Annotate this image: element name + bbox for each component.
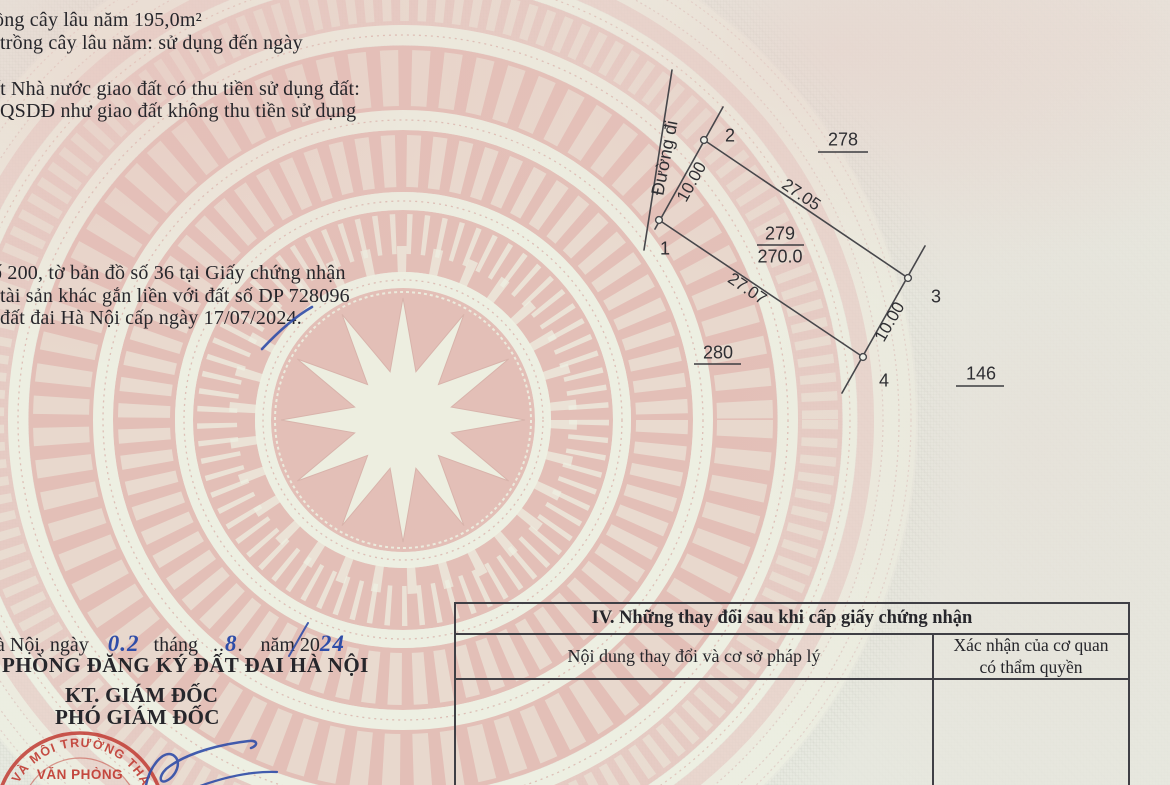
empty-cell-confirmation [932, 680, 1128, 785]
changes-table-title: IV. Những thay đổi sau khi cấp giấy chứn… [456, 604, 1128, 635]
signature-tail [200, 772, 277, 785]
text-state-allocation: ất Nhà nước giao đất có thu tiền sử dụng… [0, 78, 360, 101]
drum-star [281, 298, 525, 542]
empty-cell-content [456, 680, 932, 785]
changes-table-empty-row [456, 680, 1128, 785]
text-qsdd: QSDĐ như giao đất không thu tiền sử dụng [0, 100, 356, 123]
scanned-land-certificate: { "colors": { "seal_red": "#c13b32", "in… [0, 0, 1170, 785]
text-map-sheet: ố 200, tờ bản đồ số 36 tại Giấy chứng nh… [0, 262, 346, 285]
col-header-confirmation-line1: Xác nhận của cơ quan [953, 635, 1108, 657]
text-perennial-term: trồng cây lâu năm: sử dụng đến ngày [0, 32, 303, 55]
vertex-4-label: 4 [879, 371, 889, 392]
kt-giam-doc: KT. GIÁM ĐỐC [65, 684, 218, 707]
col-header-confirmation-line2: có thẩm quyền [979, 657, 1082, 679]
changes-table-header: Nội dung thay đổi và cơ sở pháp lý Xác n… [456, 635, 1128, 680]
vertex-3-marker [905, 275, 912, 282]
vertex-4-marker [860, 354, 867, 361]
office-name: PHÒNG ĐĂNG KÝ ĐẤT ĐAI HÀ NỘI [2, 654, 369, 677]
parcel-area-270: 270.0 [757, 247, 802, 268]
vertex-1-label: 1 [660, 239, 670, 260]
col-header-confirmation: Xác nhận của cơ quan có thẩm quyền [932, 635, 1128, 678]
adjacent-parcel-280: 280 [703, 343, 733, 364]
dim-bottom-27-07: 27.07 [724, 269, 770, 309]
text-issue-date: đất đai Hà Nội cấp ngày 17/07/2024. [0, 307, 302, 330]
dim-right-10: 10.00 [871, 299, 910, 346]
dim-top-27-05: 27.05 [778, 175, 824, 215]
vertex-2-marker [701, 137, 708, 144]
text-perennial-area: ồng cây lâu năm 195,0m² [0, 9, 202, 32]
parcel-number-279: 279 [765, 224, 795, 245]
vertex-1-marker [656, 217, 663, 224]
dim-left-10: 10.00 [673, 159, 711, 206]
vertex-2-label: 2 [725, 126, 735, 147]
vertex-3-label: 3 [931, 287, 941, 308]
changes-table: IV. Những thay đổi sau khi cấp giấy chứn… [454, 602, 1130, 785]
changes-table-title-text: IV. Những thay đổi sau khi cấp giấy chứn… [592, 608, 973, 629]
adjacent-parcel-278: 278 [828, 130, 858, 151]
official-red-seal: ÊN VÀ MÔI TRƯỜNG THÀNH VĂN PHÒNG [0, 715, 210, 785]
col-header-content: Nội dung thay đổi và cơ sở pháp lý [456, 635, 932, 678]
adjacent-parcel-146: 146 [966, 364, 996, 385]
seal-center-text: VĂN PHÒNG [37, 767, 123, 782]
text-asset-number: tài sản khác gắn liền với đất số DP 7280… [0, 285, 350, 308]
